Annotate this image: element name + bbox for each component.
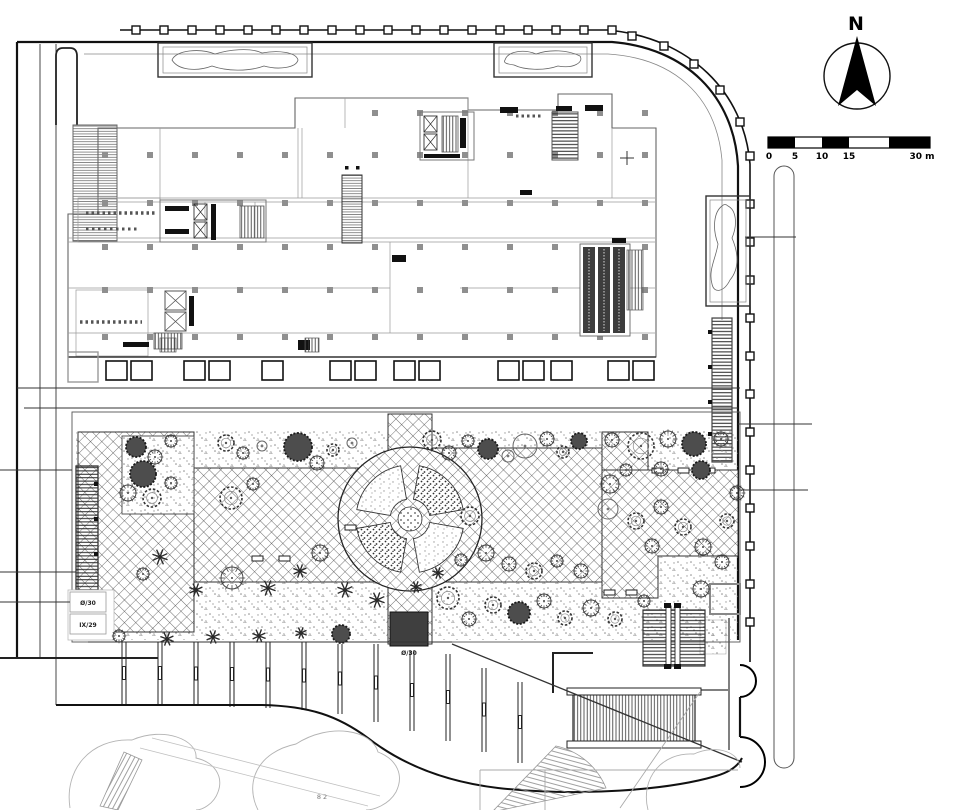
- tree-symbol-d: [130, 461, 156, 487]
- street-bollard: [746, 542, 754, 550]
- street-bollard: [716, 86, 724, 94]
- column: [102, 200, 108, 206]
- street-bollard: [300, 26, 308, 34]
- tree-symbol-d: [126, 437, 146, 457]
- facade-planter: [633, 361, 654, 380]
- street-bollard: [160, 26, 168, 34]
- vehicle-ramp: [73, 125, 117, 241]
- column: [372, 244, 378, 250]
- column: [642, 110, 648, 116]
- column: [282, 287, 288, 293]
- column: [552, 200, 558, 206]
- column: [462, 334, 468, 340]
- column: [147, 334, 153, 340]
- column: [417, 200, 423, 206]
- adjacent-label: 8 2: [317, 793, 327, 801]
- column: [417, 244, 423, 250]
- column: [462, 200, 468, 206]
- column: [372, 287, 378, 293]
- internal-road: [17, 388, 740, 408]
- facade-planter: [355, 361, 376, 380]
- site-plan-drawing: Ø/30 IX/29 Ø/30: [0, 0, 953, 810]
- column: [327, 287, 333, 293]
- tree-symbol-d: [571, 433, 587, 449]
- column: [552, 244, 558, 250]
- column: [642, 244, 648, 250]
- column: [282, 244, 288, 250]
- street-bollard: [746, 428, 754, 436]
- circle-plaza-feature: [338, 447, 482, 591]
- level-label-bottom: IX/29: [79, 622, 96, 629]
- street-bollard: [468, 26, 476, 34]
- column: [237, 152, 243, 158]
- bench: [678, 468, 689, 473]
- column: [192, 244, 198, 250]
- column: [147, 287, 153, 293]
- level-label-top: Ø/30: [80, 600, 96, 607]
- column: [507, 287, 513, 293]
- facade-planter: [209, 361, 230, 380]
- facade-planter: [131, 361, 152, 380]
- stall-marker: [411, 684, 414, 697]
- column: [507, 244, 513, 250]
- stall-marker: [339, 672, 342, 685]
- street-bollard: [608, 26, 616, 34]
- south-entry: Ø/30: [390, 612, 428, 657]
- street-bollard: [746, 618, 754, 626]
- bench: [604, 590, 615, 595]
- street-bollard: [660, 42, 668, 50]
- site-boundary: [17, 26, 765, 787]
- escalator-single: [342, 166, 362, 243]
- tree-symbol-d: [682, 432, 706, 456]
- column: [462, 152, 468, 158]
- column: [327, 244, 333, 250]
- column: [237, 200, 243, 206]
- column: [462, 244, 468, 250]
- column: [507, 200, 513, 206]
- column: [642, 152, 648, 158]
- facade-planter: [106, 361, 127, 380]
- street-bollard: [384, 26, 392, 34]
- column: [147, 200, 153, 206]
- column: [102, 287, 108, 293]
- landscape-beds: [158, 43, 750, 462]
- east-staircase: [643, 603, 705, 669]
- misc-fixtures: [123, 105, 603, 350]
- column: [102, 334, 108, 340]
- scale-tick-15: 15: [843, 152, 856, 162]
- column: [372, 334, 378, 340]
- scale-tick-30: 30 m: [909, 152, 934, 162]
- street-bollard: [328, 26, 336, 34]
- street-bollard: [628, 32, 636, 40]
- column: [327, 200, 333, 206]
- facade-planter: [262, 361, 283, 380]
- tree-symbol-d: [692, 461, 710, 479]
- scale-tick-0: 0: [766, 152, 772, 162]
- column: [462, 287, 468, 293]
- street-bollard: [746, 580, 754, 588]
- column: [147, 152, 153, 158]
- core-left-service: [160, 200, 266, 242]
- street-bollard: [746, 504, 754, 512]
- column: [597, 152, 603, 158]
- fan-stair: [492, 746, 606, 810]
- building: [68, 94, 656, 382]
- column: [102, 152, 108, 158]
- stall-marker: [447, 691, 450, 704]
- column: [552, 287, 558, 293]
- facade-planter: [608, 361, 629, 380]
- column: [237, 244, 243, 250]
- column: [417, 287, 423, 293]
- street-bollard: [216, 26, 224, 34]
- tree-symbol-d: [478, 439, 498, 459]
- street-bollard: [552, 26, 560, 34]
- column: [417, 334, 423, 340]
- bench: [279, 556, 290, 561]
- column: [237, 287, 243, 293]
- column: [282, 152, 288, 158]
- column: [507, 334, 513, 340]
- tree-symbol-d: [332, 625, 350, 643]
- stall-marker: [519, 716, 522, 729]
- stall-marker: [483, 703, 486, 716]
- scale-tick-10: 10: [816, 152, 829, 162]
- column: [192, 334, 198, 340]
- street-bollard: [746, 352, 754, 360]
- facade-planter: [498, 361, 519, 380]
- column: [327, 152, 333, 158]
- street-bollard: [188, 26, 196, 34]
- column: [192, 152, 198, 158]
- column: [192, 287, 198, 293]
- stall-marker: [267, 668, 270, 681]
- street-bollard: [244, 26, 252, 34]
- diagonal-stair: [100, 752, 142, 810]
- facade-planter: [184, 361, 205, 380]
- facade-planter: [551, 361, 572, 380]
- column: [237, 334, 243, 340]
- facade-planter: [330, 361, 351, 380]
- street-bollard: [746, 314, 754, 322]
- plaza: Ø/30 IX/29 Ø/30: [68, 412, 740, 748]
- street-bollard: [746, 466, 754, 474]
- facade-planter: [523, 361, 544, 380]
- column: [372, 152, 378, 158]
- column: [102, 244, 108, 250]
- column: [372, 200, 378, 206]
- north-arrow: N: [824, 13, 890, 109]
- street-bollard: [496, 26, 504, 34]
- bench: [626, 590, 637, 595]
- street-bollard: [524, 26, 532, 34]
- column: [642, 334, 648, 340]
- street-bollard: [746, 390, 754, 398]
- street-bollard: [272, 26, 280, 34]
- stall-marker: [375, 676, 378, 689]
- street-bollard: [690, 60, 698, 68]
- scale-tick-5: 5: [792, 152, 798, 162]
- tree-symbol-d: [284, 433, 312, 461]
- stall-marker: [123, 667, 126, 680]
- cad-site-plan-canvas: Ø/30 IX/29 Ø/30: [0, 0, 953, 810]
- scale-bar: 0 5 10 15 30 m: [766, 137, 935, 162]
- street-bollard: [412, 26, 420, 34]
- street-bollard: [736, 118, 744, 126]
- column: [462, 110, 468, 116]
- north-label: N: [848, 13, 864, 35]
- street-bollard: [132, 26, 140, 34]
- column: [282, 200, 288, 206]
- facade-planter: [394, 361, 415, 380]
- column: [327, 334, 333, 340]
- column: [282, 334, 288, 340]
- bench: [252, 556, 263, 561]
- facade-planter: [419, 361, 440, 380]
- bench: [345, 525, 356, 530]
- street-bollard: [746, 152, 754, 160]
- column: [552, 334, 558, 340]
- tree-symbol-d: [508, 602, 530, 624]
- escalator-bank: [580, 238, 643, 336]
- column: [372, 110, 378, 116]
- street-bollard: [356, 26, 364, 34]
- column: [147, 244, 153, 250]
- street-bollard: [440, 26, 448, 34]
- core-right-stair: [552, 112, 578, 160]
- column: [597, 200, 603, 206]
- column: [642, 200, 648, 206]
- stall-marker: [195, 667, 198, 680]
- street-bollard: [580, 26, 588, 34]
- column: [507, 152, 513, 158]
- stall-marker: [231, 668, 234, 681]
- stall-marker: [159, 667, 162, 680]
- stall-marker: [303, 669, 306, 682]
